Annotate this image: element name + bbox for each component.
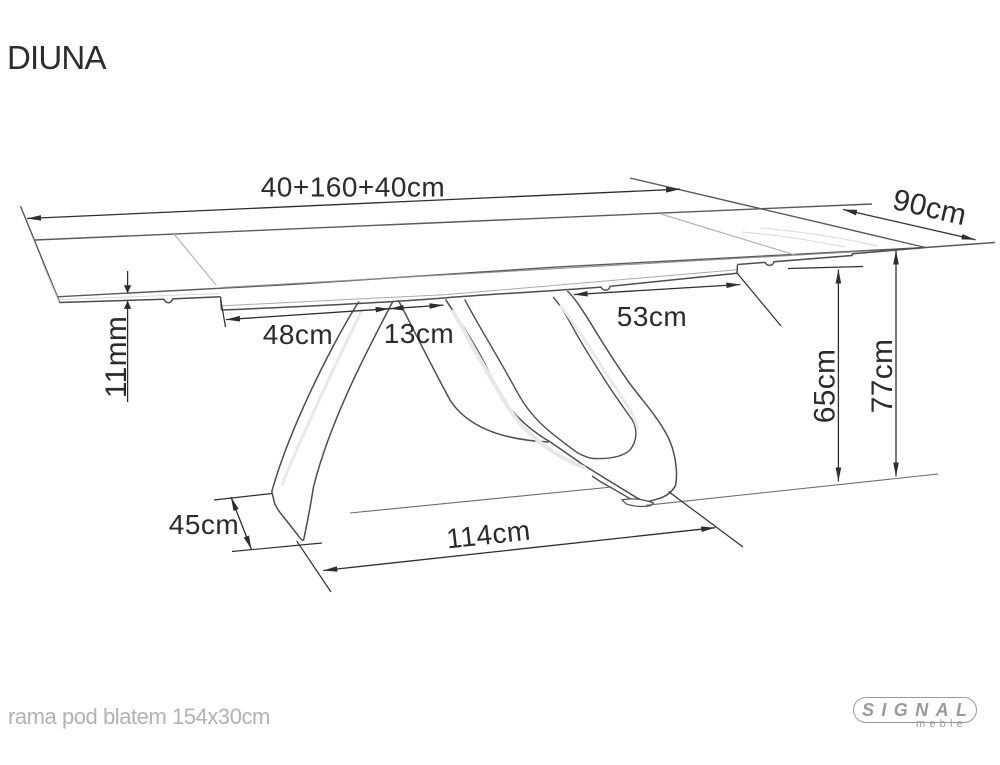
svg-text:48cm: 48cm xyxy=(263,319,333,350)
svg-text:90cm: 90cm xyxy=(890,183,970,232)
svg-text:11mm: 11mm xyxy=(100,316,133,398)
svg-text:65cm: 65cm xyxy=(809,349,842,424)
svg-text:40+160+40cm: 40+160+40cm xyxy=(261,172,446,203)
svg-text:53cm: 53cm xyxy=(617,301,687,332)
svg-text:45cm: 45cm xyxy=(169,509,239,540)
svg-text:13cm: 13cm xyxy=(384,318,454,349)
svg-text:77cm: 77cm xyxy=(866,339,899,414)
